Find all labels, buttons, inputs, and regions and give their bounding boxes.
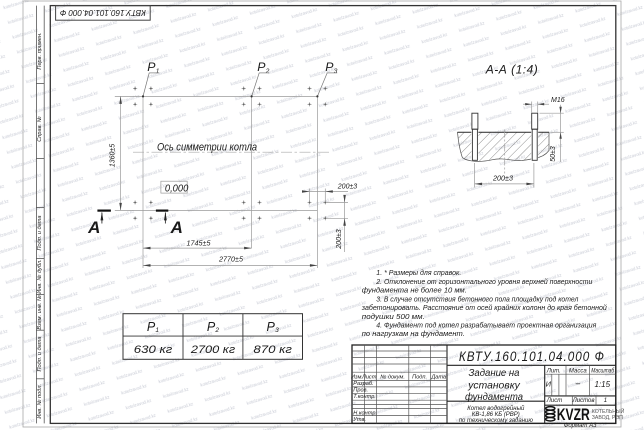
svg-text:1745±5: 1745±5 <box>187 238 212 247</box>
svg-text:Формат А3: Формат А3 <box>564 423 597 429</box>
svg-text:А: А <box>170 218 183 237</box>
svg-text:1:15: 1:15 <box>595 380 611 389</box>
svg-text:3. В случае отсутствия бетонно: 3. В случае отсутствия бетонного пола пл… <box>376 294 578 303</box>
svg-text:забетонировать. Расстояние от: забетонировать. Расстояние от осей крайн… <box>361 303 607 312</box>
svg-text:фундамента не более 10 мм.: фундамента не более 10 мм. <box>362 286 467 295</box>
svg-text:по нагрузкам на фундамент.: по нагрузкам на фундамент. <box>362 329 465 338</box>
svg-text:870 кг: 870 кг <box>253 344 292 356</box>
svg-text:КОТЕЛЬНЫЙ: КОТЕЛЬНЫЙ <box>592 407 625 415</box>
svg-text:1360±5: 1360±5 <box>110 144 117 167</box>
svg-text:Подп.: Подп. <box>412 375 427 381</box>
svg-text:Задание на: Задание на <box>469 367 520 379</box>
svg-text:подушки 500 мм.: подушки 500 мм. <box>362 312 425 321</box>
svg-text:Лист: Лист <box>361 375 377 381</box>
svg-text:3: 3 <box>275 327 279 334</box>
svg-text:Т.контр.: Т.контр. <box>353 394 376 400</box>
svg-text:Листов: Листов <box>572 398 595 404</box>
svg-text:КВТУ.160.101.04.000 Ф: КВТУ.160.101.04.000 Ф <box>459 348 605 364</box>
svg-text:2700 кг: 2700 кг <box>190 344 236 356</box>
svg-text:А-А (1:4): А-А (1:4) <box>485 62 539 76</box>
svg-text:Н.контр.: Н.контр. <box>353 410 377 416</box>
svg-text:А: А <box>87 218 100 237</box>
svg-text:200±3: 200±3 <box>337 184 358 191</box>
svg-text:Инв. № дубл.: Инв. № дубл. <box>37 259 43 293</box>
svg-text:1. * Размеры для справок.: 1. * Размеры для справок. <box>376 268 461 277</box>
svg-text:2: 2 <box>265 68 270 75</box>
svg-text:фундамента: фундамента <box>465 391 523 403</box>
svg-text:50±3: 50±3 <box>550 146 557 162</box>
svg-text:КВТУ.160.101.04.000 Ф: КВТУ.160.101.04.000 Ф <box>59 8 146 17</box>
svg-text:Дата: Дата <box>430 375 446 381</box>
svg-text:№ докум.: № докум. <box>380 375 405 381</box>
svg-text:И: И <box>546 379 552 388</box>
svg-text:Масса: Масса <box>569 369 587 375</box>
svg-text:200±3: 200±3 <box>492 173 513 182</box>
svg-text:Разраб.: Разраб. <box>353 381 373 387</box>
svg-text:установку: установку <box>467 380 520 392</box>
svg-text:по техническому заданию: по техническому заданию <box>459 418 534 424</box>
svg-text:Лит.: Лит. <box>546 369 561 375</box>
svg-text:1: 1 <box>604 398 607 404</box>
svg-text:Котел водогрейный: Котел водогрейный <box>467 405 525 412</box>
svg-text:–: – <box>575 379 581 388</box>
svg-text:Инв. № подл.: Инв. № подл. <box>37 384 43 419</box>
svg-text:Ось симметрии котла: Ось симметрии котла <box>157 141 257 153</box>
svg-text:2: 2 <box>214 327 219 334</box>
svg-text:М16: М16 <box>551 97 565 104</box>
svg-text:Пров.: Пров. <box>353 388 368 394</box>
svg-text:ЗАВОД, РЭП: ЗАВОД, РЭП <box>592 415 623 421</box>
svg-text:630 кг: 630 кг <box>134 344 173 356</box>
svg-text:1: 1 <box>156 68 160 75</box>
svg-text:Подп. и дата: Подп. и дата <box>37 215 43 250</box>
svg-text:KVZR: KVZR <box>557 406 590 424</box>
svg-text:Масштаб: Масштаб <box>591 369 615 375</box>
svg-text:Справ. №: Справ. № <box>37 116 43 141</box>
svg-text:Перв. примен.: Перв. примен. <box>37 32 43 69</box>
svg-text:3: 3 <box>334 68 338 75</box>
svg-text:2770±5: 2770±5 <box>218 254 244 263</box>
svg-text:200±3: 200±3 <box>336 229 343 250</box>
svg-text:Утв.: Утв. <box>352 417 366 423</box>
svg-text:Лист: Лист <box>546 398 562 404</box>
svg-text:1: 1 <box>155 327 159 334</box>
svg-text:КВ-1,86 КБ (РВР): КВ-1,86 КБ (РВР) <box>472 412 520 418</box>
svg-text:0,000: 0,000 <box>165 183 189 194</box>
svg-text:Подп. и дата: Подп. и дата <box>37 336 43 371</box>
svg-text:Взам. инв. №: Взам. инв. № <box>37 295 43 330</box>
